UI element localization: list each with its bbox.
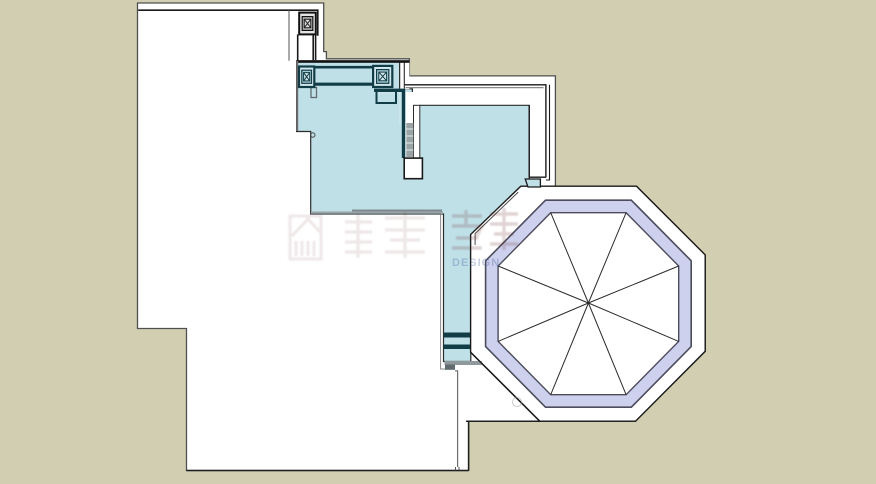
svg-text:DESIGN: DESIGN — [452, 257, 500, 269]
